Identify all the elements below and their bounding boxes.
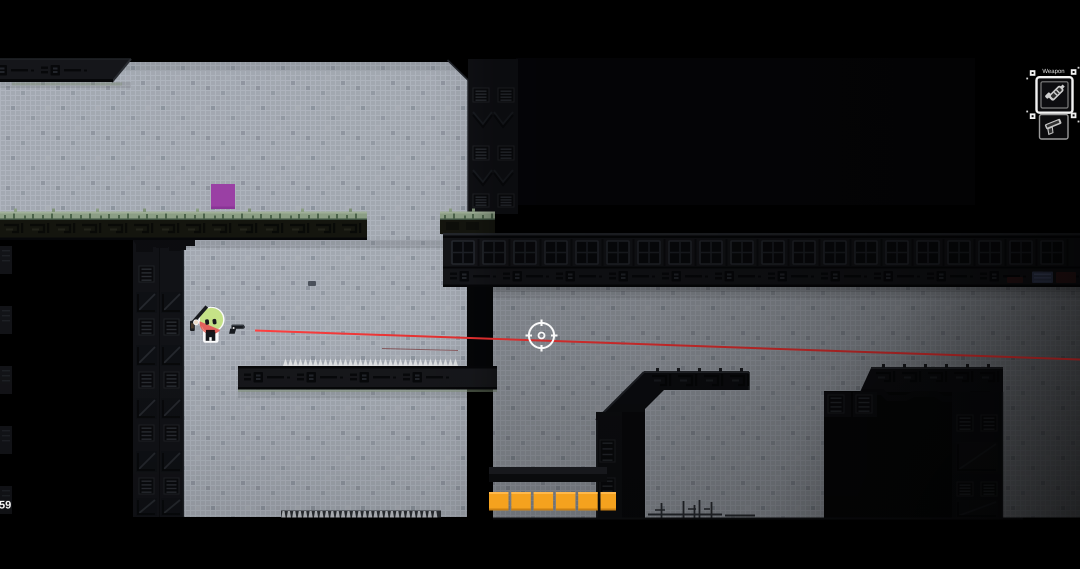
svg-text:59: 59	[0, 500, 11, 512]
svg-text:Weapon: Weapon	[1042, 68, 1064, 75]
